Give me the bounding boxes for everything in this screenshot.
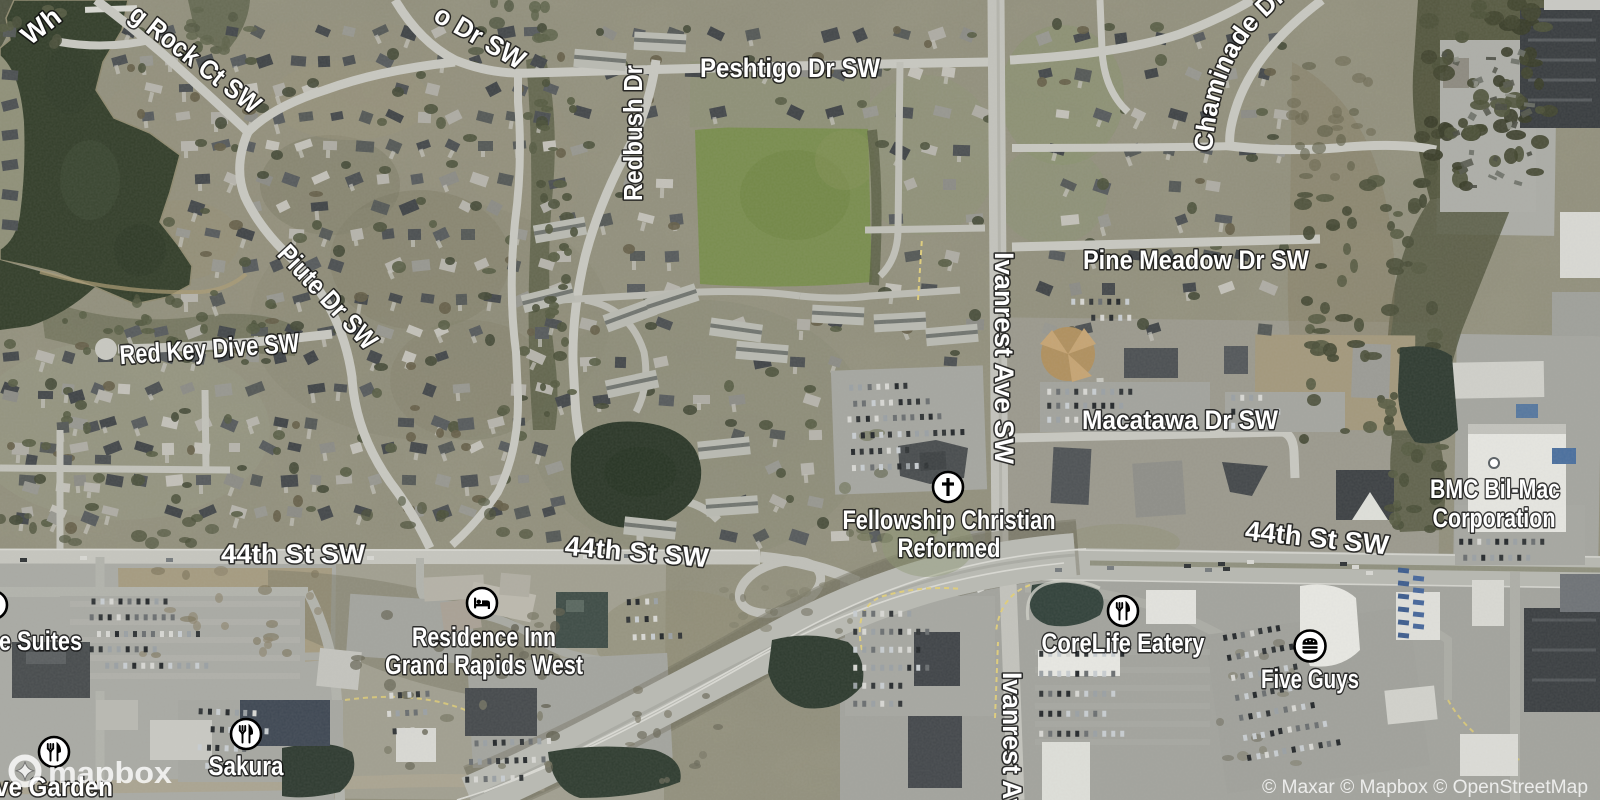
- svg-text:Corporation: Corporation: [1433, 503, 1556, 533]
- svg-text:Five Guys: Five Guys: [1261, 664, 1359, 694]
- svg-text:Reformed: Reformed: [898, 533, 1001, 563]
- svg-text:44th St SW: 44th St SW: [221, 539, 366, 569]
- svg-text:e Suites: e Suites: [0, 626, 82, 656]
- svg-text:Ivanrest Ave SW: Ivanrest Ave SW: [989, 252, 1019, 465]
- svg-text:Macatawa Dr SW: Macatawa Dr SW: [1082, 405, 1278, 435]
- svg-text:BMC Bil-Mac: BMC Bil-Mac: [1430, 474, 1560, 504]
- svg-text:Residence Inn: Residence Inn: [412, 622, 556, 652]
- svg-text:Grand Rapids West: Grand Rapids West: [385, 650, 583, 680]
- svg-text:CoreLife Eatery: CoreLife Eatery: [1042, 628, 1205, 658]
- svg-text:© Maxar © Mapbox © OpenStreetM: © Maxar © Mapbox © OpenStreetMap: [1262, 777, 1588, 798]
- svg-text:Peshtigo Dr SW: Peshtigo Dr SW: [700, 53, 880, 83]
- svg-text:Sakura: Sakura: [209, 751, 285, 781]
- svg-text:Redbush Dr: Redbush Dr: [618, 65, 648, 201]
- svg-text:Fellowship Christian: Fellowship Christian: [843, 505, 1056, 535]
- svg-text:mapbox: mapbox: [48, 755, 173, 790]
- svg-text:Pine Meadow Dr SW: Pine Meadow Dr SW: [1083, 245, 1309, 275]
- svg-text:Ivanrest Ave SW: Ivanrest Ave SW: [997, 672, 1027, 800]
